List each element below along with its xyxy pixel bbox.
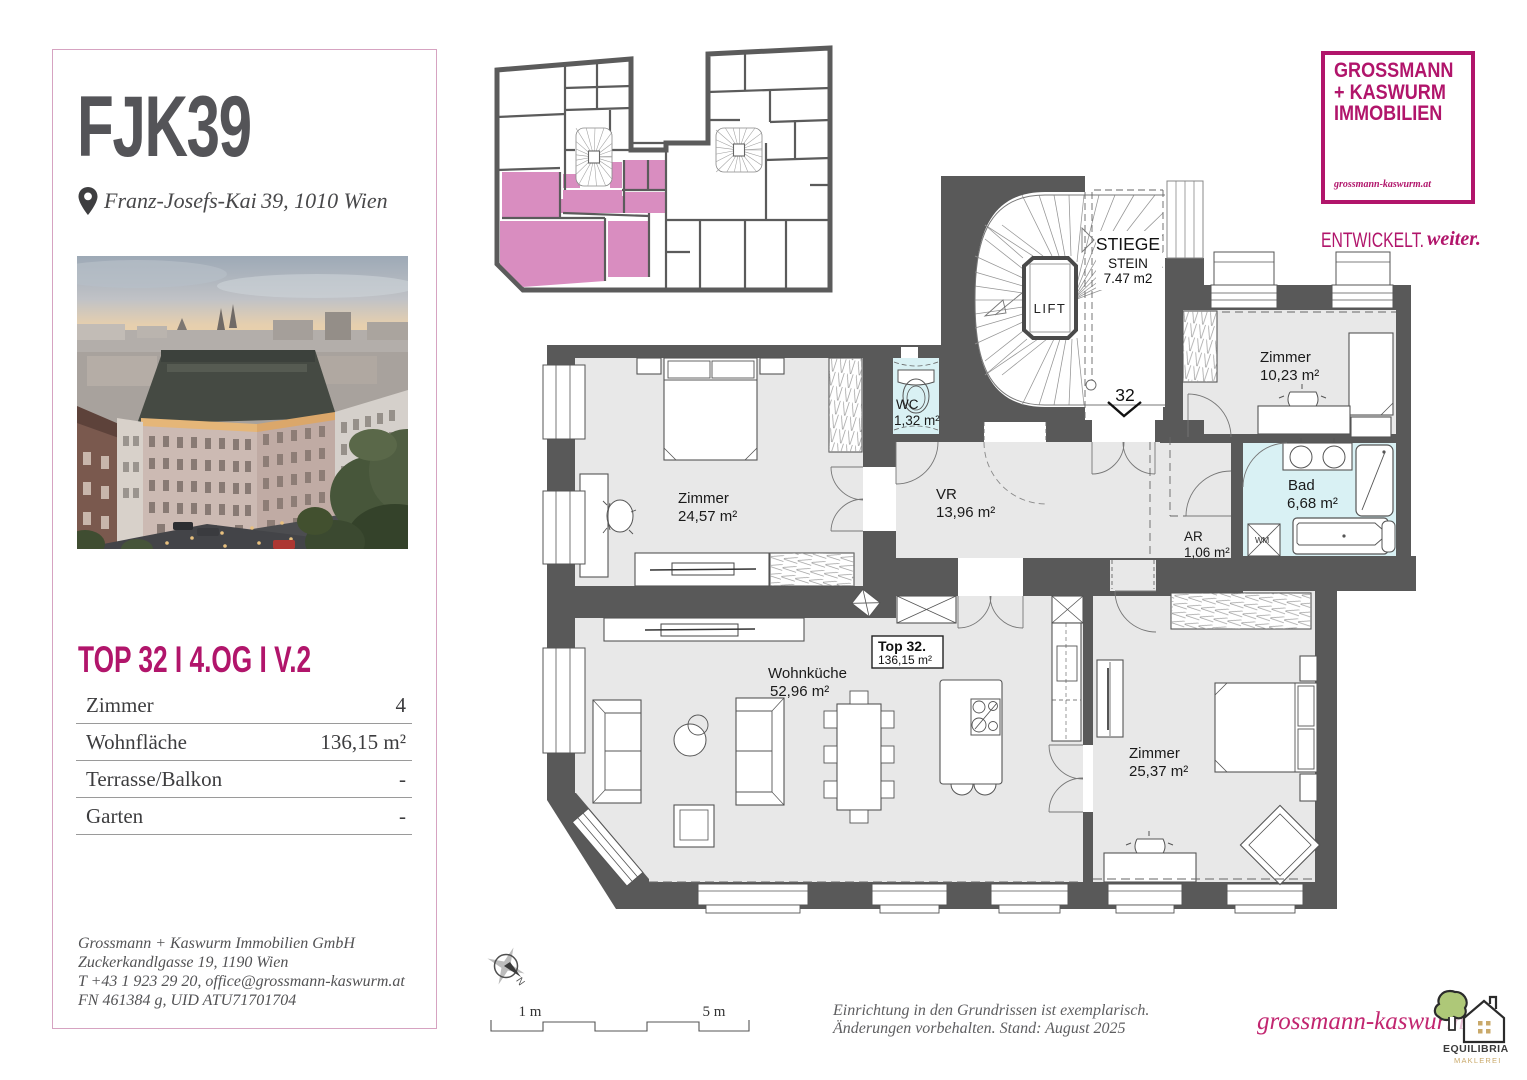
svg-text:52,96 m²: 52,96 m² — [770, 683, 829, 700]
svg-text:Bad: Bad — [1288, 477, 1315, 494]
svg-text:136,15 m²: 136,15 m² — [878, 653, 932, 667]
svg-text:1,32 m²: 1,32 m² — [894, 413, 940, 428]
svg-text:WC: WC — [896, 397, 919, 412]
svg-text:1 m: 1 m — [519, 1004, 542, 1020]
svg-text:LIFT: LIFT — [1034, 301, 1067, 316]
svg-text:Zimmer: Zimmer — [678, 490, 729, 507]
svg-text:WM: WM — [1255, 536, 1270, 545]
svg-text:7.47 m2: 7.47 m2 — [1104, 271, 1153, 286]
svg-text:5 m: 5 m — [703, 1004, 726, 1020]
svg-text:Zimmer: Zimmer — [1260, 349, 1311, 366]
svg-text:STEIN: STEIN — [1108, 256, 1148, 271]
svg-text:AR: AR — [1184, 529, 1203, 544]
svg-text:1,06 m²: 1,06 m² — [1184, 545, 1230, 560]
svg-text:13,96 m²: 13,96 m² — [936, 504, 995, 521]
svg-text:Zimmer: Zimmer — [1129, 745, 1180, 762]
svg-text:6,68 m²: 6,68 m² — [1287, 495, 1338, 512]
svg-text:10,23 m²: 10,23 m² — [1260, 367, 1319, 384]
svg-text:Wohnküche: Wohnküche — [768, 665, 847, 682]
svg-text:25,37 m²: 25,37 m² — [1129, 763, 1188, 780]
svg-text:32: 32 — [1115, 385, 1134, 405]
svg-text:24,57 m²: 24,57 m² — [678, 508, 737, 525]
svg-text:VR: VR — [936, 486, 957, 503]
svg-text:N: N — [513, 976, 526, 988]
svg-text:Top 32.: Top 32. — [878, 638, 926, 654]
svg-text:STIEGE: STIEGE — [1096, 234, 1160, 254]
svg-text:EQUILIBRIA: EQUILIBRIA — [1443, 1043, 1509, 1055]
svg-text:MAKLEREI: MAKLEREI — [1454, 1056, 1502, 1065]
